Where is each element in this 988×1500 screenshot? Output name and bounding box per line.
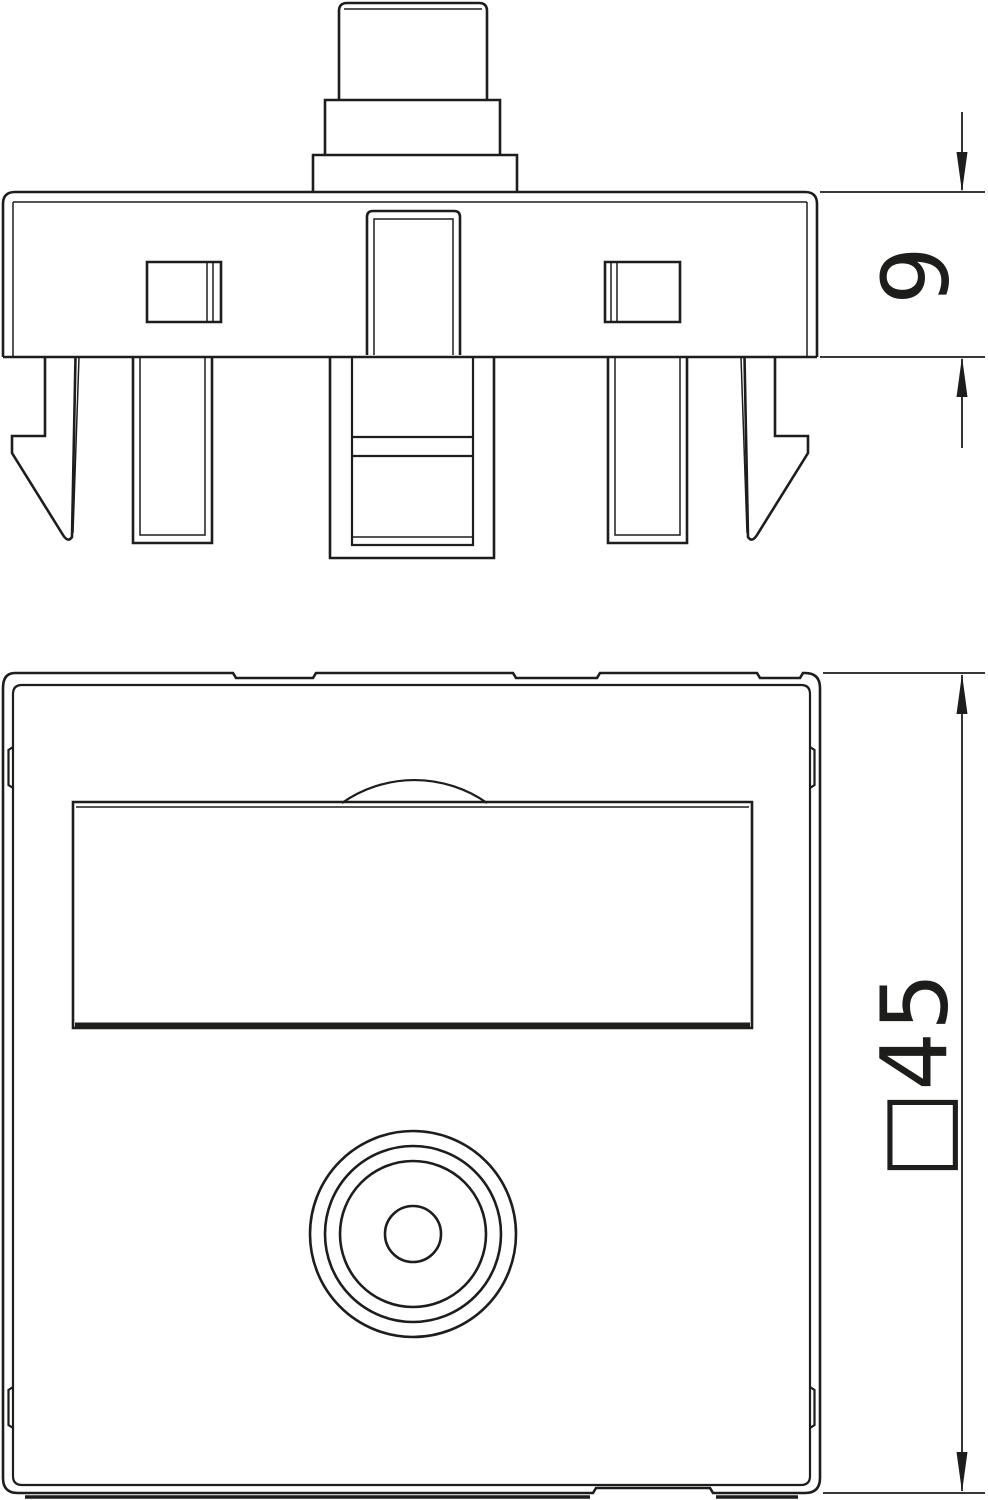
stub-step-1 (339, 3, 487, 100)
audio-socket (310, 1131, 516, 1337)
module-body (3, 192, 817, 357)
depth-dimension-text: 9 (863, 245, 970, 305)
center-slot-outer (367, 211, 460, 355)
face-arrow-bottom (957, 1452, 968, 1492)
left-leg-inner (140, 357, 205, 535)
drawing-svg: 9 □45 (0, 0, 988, 1500)
front-plate-inner-line (13, 685, 810, 1485)
stub-step-2 (325, 100, 500, 155)
front-plate-outline (3, 673, 820, 1493)
right-barb-clip (745, 357, 809, 540)
technical-drawing: 9 □45 (0, 0, 988, 1500)
left-barb-clip (12, 357, 76, 540)
connector-stub (313, 3, 517, 192)
socket-pin-hole (385, 1206, 441, 1262)
depth-dimension: 9 (820, 112, 985, 448)
left-square-hole (147, 262, 221, 322)
right-square-hole-inner-lines (611, 263, 617, 321)
body-outline (3, 192, 817, 357)
socket-middle-ring (325, 1146, 501, 1322)
center-clip-outer (330, 357, 494, 558)
depth-arrow-top (957, 152, 968, 192)
center-clip-latch-band (352, 437, 473, 456)
face-arrow-top (957, 674, 968, 714)
right-leg-inner (615, 357, 680, 535)
stub-step-3 (313, 155, 517, 192)
face-dimension: □45 (823, 673, 985, 1493)
side-coding-notches (9, 747, 815, 1428)
depth-arrow-bottom (957, 357, 968, 397)
mounting-clips (12, 357, 808, 558)
label-field (73, 780, 752, 1028)
socket-inner-ring (340, 1161, 486, 1307)
front-view: □45 (3, 673, 985, 1497)
face-dimension-text: □45 (862, 972, 969, 1179)
side-view: 9 (3, 3, 985, 558)
label-field-frame (73, 802, 752, 1028)
left-square-hole-inner-lines (207, 263, 213, 321)
right-leg-outer (608, 357, 687, 543)
label-field-arc (342, 780, 487, 803)
left-leg-outer (133, 357, 212, 543)
center-slot-inner (374, 219, 453, 355)
center-clip-inner (352, 357, 473, 545)
